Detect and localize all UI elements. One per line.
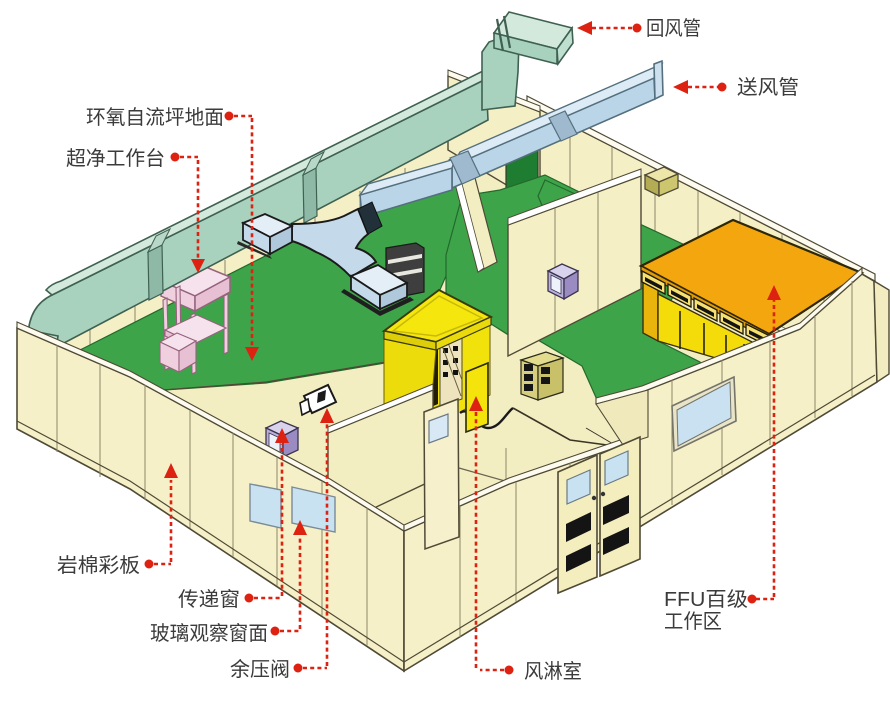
svg-text:玻璃观察窗面: 玻璃观察窗面 [150,622,268,645]
svg-text:工作区: 工作区 [664,610,722,633]
svg-text:送风管: 送风管 [737,76,799,99]
svg-text:风淋室: 风淋室 [524,660,582,683]
svg-text:回风管: 回风管 [646,17,701,40]
svg-text:超净工作台: 超净工作台 [66,147,165,170]
svg-text:FFU百级: FFU百级 [664,588,748,611]
svg-text:余压阀: 余压阀 [230,658,290,681]
svg-text:岩棉彩板: 岩棉彩板 [57,554,140,577]
svg-text:环氧自流坪地面: 环氧自流坪地面 [86,106,224,129]
svg-text:传递窗: 传递窗 [178,588,240,611]
